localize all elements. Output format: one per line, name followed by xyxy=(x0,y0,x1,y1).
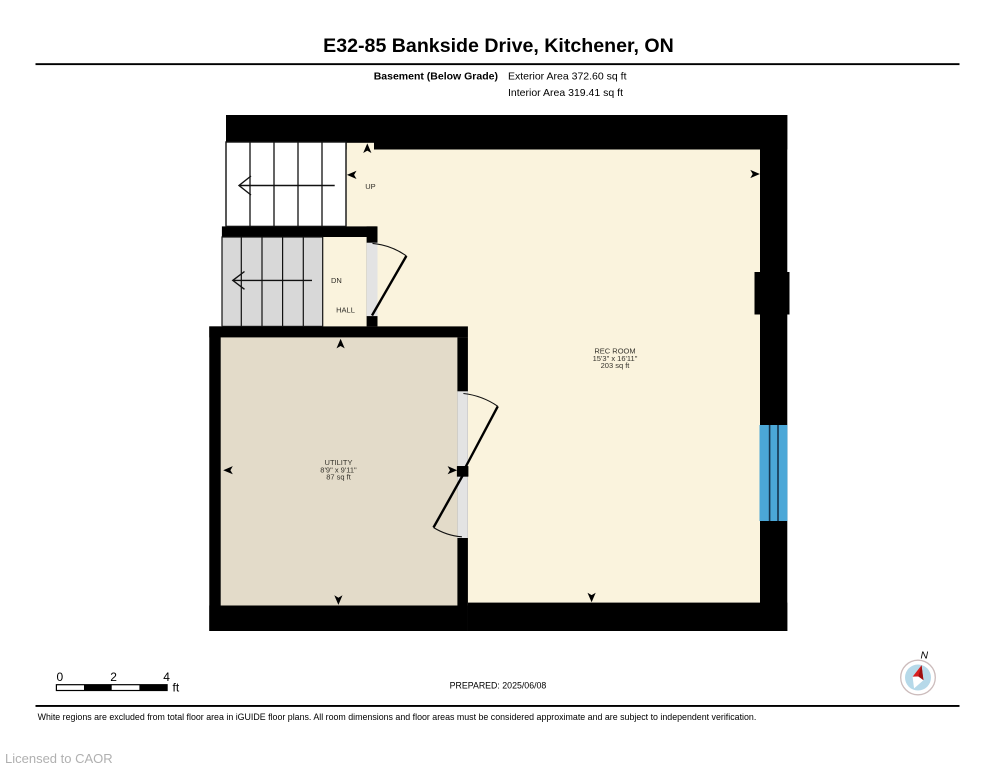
svg-text:2: 2 xyxy=(110,670,117,684)
svg-text:HALL: HALL xyxy=(336,305,355,314)
svg-text:Exterior Area 372.60 sq ft: Exterior Area 372.60 sq ft xyxy=(508,70,627,82)
svg-text:4: 4 xyxy=(163,670,170,684)
svg-text:ft: ft xyxy=(173,680,180,694)
svg-text:0: 0 xyxy=(56,670,63,684)
svg-text:N: N xyxy=(921,650,929,662)
svg-text:PREPARED: 2025/06/08: PREPARED: 2025/06/08 xyxy=(450,681,547,691)
svg-text:Interior Area 319.41 sq ft: Interior Area 319.41 sq ft xyxy=(508,87,623,99)
svg-text:Basement (Below Grade): Basement (Below Grade) xyxy=(374,70,498,82)
svg-text:203 sq ft: 203 sq ft xyxy=(601,361,631,370)
svg-text:DN: DN xyxy=(331,276,342,285)
svg-text:87 sq ft: 87 sq ft xyxy=(326,473,352,482)
svg-text:Licensed to CAOR: Licensed to CAOR xyxy=(5,751,113,766)
svg-text:White regions are excluded fro: White regions are excluded from total fl… xyxy=(38,712,757,722)
svg-text:UP: UP xyxy=(365,182,375,191)
svg-text:E32-85 Bankside Drive, Kitchen: E32-85 Bankside Drive, Kitchener, ON xyxy=(323,35,674,57)
